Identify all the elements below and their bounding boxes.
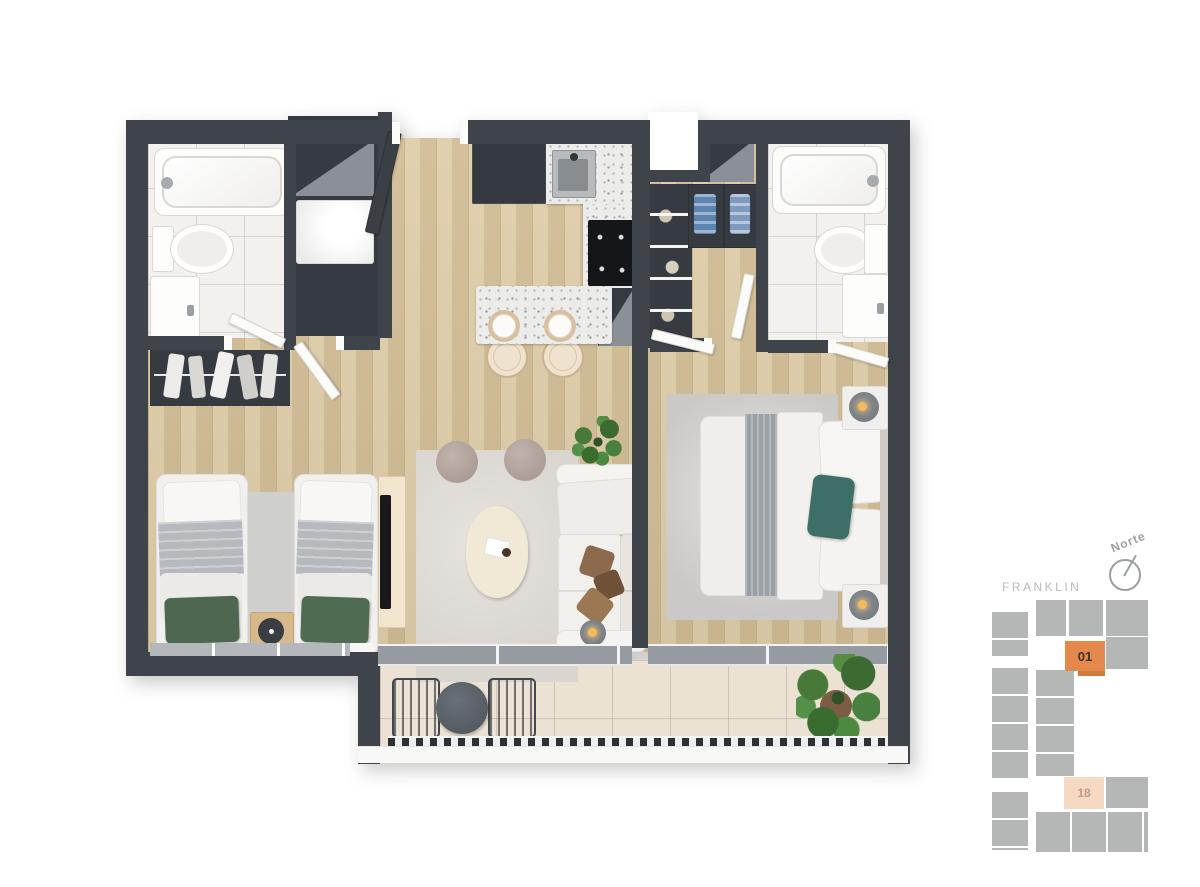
keyplan-building-block bbox=[992, 612, 1028, 656]
unit-01-tab bbox=[1078, 671, 1105, 676]
exterior-notch bbox=[648, 112, 698, 172]
bathtub-1 bbox=[154, 148, 290, 216]
pouf-ottoman bbox=[436, 441, 478, 483]
unit-18-label: 18 bbox=[1077, 786, 1090, 800]
door-jamb bbox=[704, 338, 712, 352]
tv-screen bbox=[380, 495, 391, 609]
north-compass-icon bbox=[1109, 559, 1141, 591]
balcony-plant bbox=[796, 654, 880, 742]
washing-machine bbox=[296, 200, 374, 264]
bed-throw-gray bbox=[745, 414, 778, 596]
bed-duvet bbox=[700, 416, 748, 596]
keyplan-building-block bbox=[1036, 812, 1148, 852]
door-jamb bbox=[828, 340, 836, 353]
bed-cushion-green bbox=[300, 596, 370, 644]
bed-double bbox=[700, 412, 888, 598]
wall-notch-bottom bbox=[636, 170, 710, 182]
window-bedroom-2 bbox=[150, 643, 350, 656]
floor-lamp bbox=[580, 620, 606, 646]
cooktop bbox=[588, 220, 634, 286]
folded-clothes-blue bbox=[730, 194, 750, 234]
bed-cushion-green bbox=[164, 596, 240, 645]
unit-01-label: 01 bbox=[1078, 649, 1092, 664]
keyplan-building-block bbox=[1036, 600, 1066, 636]
sink-basin bbox=[558, 159, 588, 191]
wall-bathroom1-divider bbox=[284, 140, 296, 338]
bed-single-left bbox=[156, 474, 248, 656]
bed-headboard bbox=[880, 412, 888, 598]
speaker-device bbox=[258, 618, 284, 644]
bedside-lamp bbox=[849, 590, 879, 620]
keyplan-building-block bbox=[992, 668, 1028, 780]
folded-clothes-blue bbox=[694, 194, 716, 234]
wall-exterior-left bbox=[126, 120, 148, 676]
keyplan-building-block bbox=[1106, 637, 1148, 669]
wall-exterior-top-right bbox=[698, 120, 910, 144]
keyplan: Norte FRANKLIN 01 18 bbox=[985, 530, 1185, 870]
wall-bedroom2-top bbox=[344, 336, 380, 350]
wall-bathroom1-bottom bbox=[148, 336, 232, 350]
wall-exterior-top-mid bbox=[468, 120, 650, 144]
sliding-door-living bbox=[378, 644, 632, 666]
sink-faucet bbox=[570, 153, 578, 161]
wall-exterior-top-left bbox=[126, 120, 392, 144]
tv-console bbox=[378, 476, 406, 628]
balcony-chair bbox=[488, 678, 536, 738]
closet-shelving bbox=[648, 184, 692, 344]
bed-single-right bbox=[294, 474, 378, 656]
bathtub-2 bbox=[772, 146, 886, 214]
bed-blanket-gray bbox=[158, 520, 244, 577]
keyplan-building-block bbox=[1069, 600, 1103, 636]
closet-open-door-panel-1 bbox=[292, 140, 374, 196]
street-label: FRANKLIN bbox=[1002, 580, 1081, 594]
place-setting bbox=[544, 310, 576, 342]
door-jamb bbox=[336, 336, 344, 350]
keyplan-building-block bbox=[1106, 777, 1148, 808]
keyplan-building-block bbox=[1036, 670, 1074, 776]
coffee-table bbox=[466, 506, 528, 598]
balcony-parapet bbox=[358, 746, 908, 763]
bed-blanket-gray bbox=[296, 520, 374, 577]
keyplan-building-block bbox=[992, 792, 1028, 850]
balcony-table bbox=[436, 682, 488, 734]
door-jamb bbox=[392, 122, 400, 144]
unit-18-tile[interactable]: 18 bbox=[1064, 777, 1104, 809]
wall-bedroom1-living bbox=[632, 348, 648, 648]
refrigerator bbox=[472, 142, 546, 204]
place-setting bbox=[488, 310, 520, 342]
wall-kitchen-right bbox=[632, 120, 650, 348]
closet-cubby bbox=[724, 184, 758, 248]
door-jamb bbox=[460, 122, 468, 144]
vanity-sink-1 bbox=[150, 276, 200, 340]
toilet-2-tank bbox=[864, 224, 888, 274]
north-label: Norte bbox=[1109, 529, 1148, 556]
balcony-chair bbox=[392, 678, 440, 738]
wall-closet-bathroom2 bbox=[756, 138, 768, 352]
kitchen-sink bbox=[552, 150, 596, 198]
door-jamb bbox=[224, 336, 232, 350]
unit-01-tile[interactable]: 01 bbox=[1065, 641, 1105, 671]
bed-cushion-teal bbox=[806, 474, 855, 541]
wall-exterior-right bbox=[888, 120, 910, 764]
pouf-ottoman bbox=[504, 439, 546, 481]
wall-bathroom2-bottom bbox=[768, 340, 836, 353]
toilet-1-bowl bbox=[170, 224, 234, 274]
bedside-lamp bbox=[849, 392, 879, 422]
vanity-sink-2 bbox=[842, 274, 890, 338]
floorplan-canvas: Norte FRANKLIN 01 18 bbox=[0, 0, 1200, 887]
keyplan-building-block bbox=[1106, 600, 1148, 636]
potted-plant bbox=[572, 416, 624, 468]
closet-cubby bbox=[688, 184, 724, 248]
